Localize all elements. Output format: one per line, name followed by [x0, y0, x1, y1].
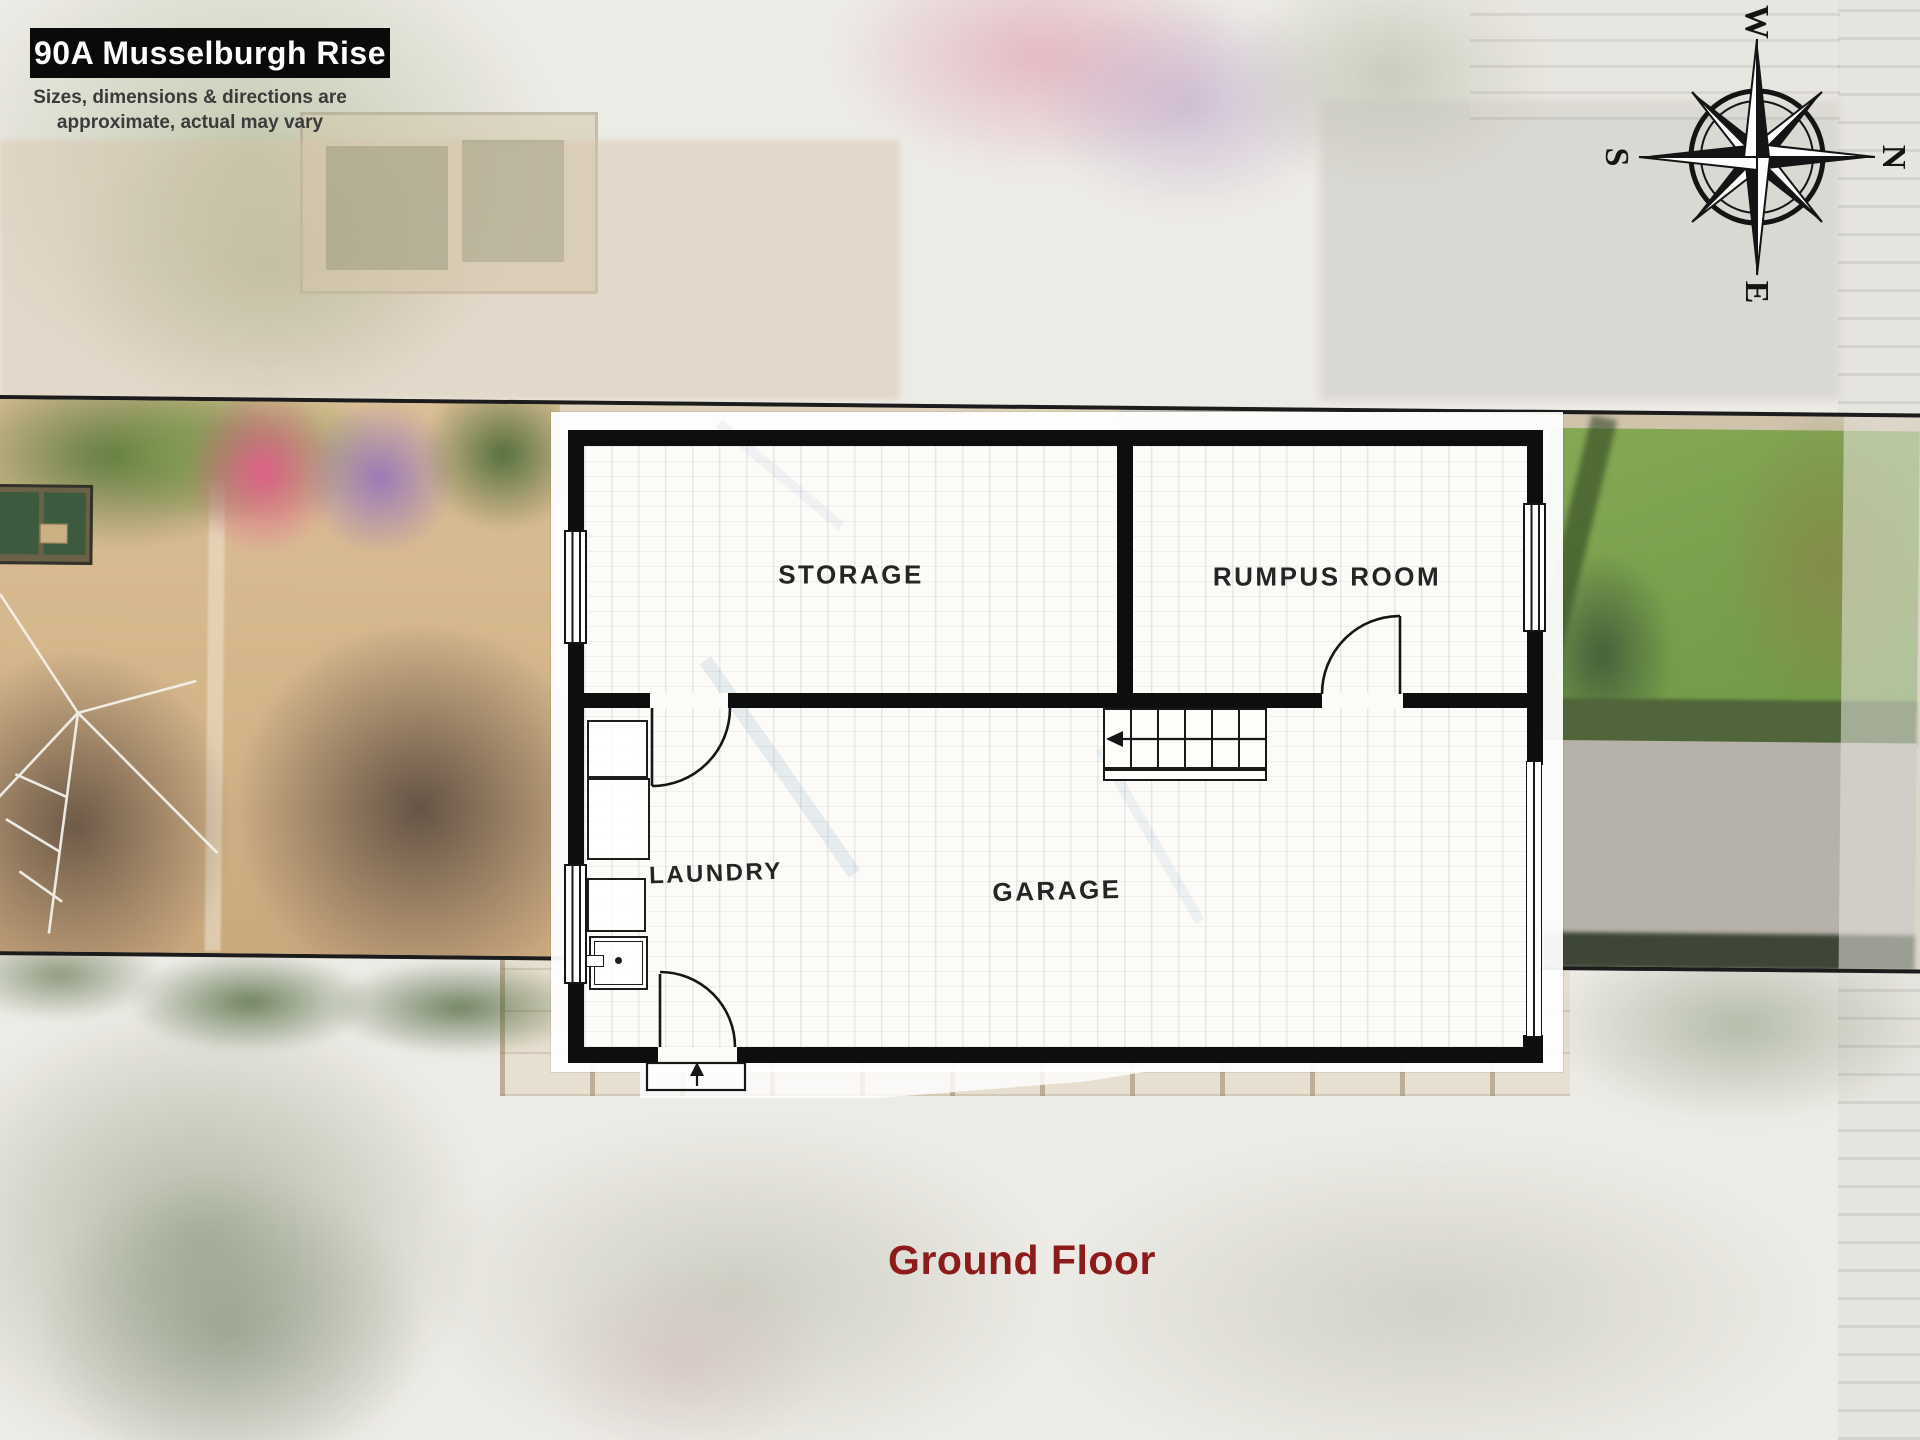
- room-label-rumpus: RUMPUS ROOM: [1213, 562, 1441, 593]
- room-label-garage: GARAGE: [992, 874, 1122, 908]
- disclaimer-line: Sizes, dimensions & directions are: [15, 86, 365, 111]
- wall-right-upper: [1527, 430, 1543, 507]
- window-laundry-left: [564, 864, 587, 984]
- address-title-box: 90A Musselburgh Rise: [30, 28, 390, 78]
- washed-pavers-top: [0, 140, 900, 400]
- window-garage-right: [1526, 761, 1542, 1037]
- washing-machine: [589, 936, 648, 990]
- laundry-tub: [587, 878, 646, 932]
- clothesline-icon: [0, 519, 253, 951]
- disclaimer-text: Sizes, dimensions & directions are appro…: [15, 86, 365, 135]
- washed-roof-strip-right: [1839, 417, 1920, 970]
- washing-machine-tray: [586, 955, 604, 967]
- paver-shadow-right: [238, 626, 601, 973]
- disclaimer-line: approximate, actual may vary: [15, 111, 365, 136]
- washed-trees-bottom-right: [1050, 1140, 1810, 1440]
- room-label-storage: STORAGE: [778, 560, 924, 591]
- wall-right-corner: [1523, 1035, 1543, 1063]
- stairs-landing: [1103, 769, 1267, 781]
- compass-south-label: S: [1598, 148, 1635, 167]
- plan-floor: [584, 446, 1527, 1047]
- rumpus-door-opening: [1322, 693, 1403, 708]
- window-storage-left: [564, 530, 587, 644]
- compass-north-label: N: [1875, 145, 1912, 170]
- compass-west-label: W: [1738, 5, 1775, 39]
- page-root: STORAGE RUMPUS ROOM LAUNDRY GARAGE 90A M…: [0, 0, 1920, 1440]
- wall-storage-rumpus-divider: [1117, 446, 1133, 693]
- laundry-door-opening: [650, 693, 728, 708]
- laundry-cupboard: [587, 778, 650, 860]
- compass-rose-icon: N E S W: [1597, 0, 1917, 317]
- floor-level-label: Ground Floor: [872, 1237, 1172, 1284]
- page-title: 90A Musselburgh Rise: [34, 35, 386, 72]
- room-label-laundry: LAUNDRY: [649, 858, 784, 891]
- washed-flowers-bottom: [540, 1270, 820, 1440]
- stairs: [1103, 708, 1267, 769]
- washing-machine-knob: [615, 957, 622, 964]
- wall-right-mid: [1527, 630, 1543, 765]
- laundry-bench: [587, 720, 648, 778]
- window-rumpus-right: [1523, 503, 1546, 632]
- entry-door-opening: [658, 1047, 737, 1063]
- compass-east-label: E: [1738, 281, 1775, 304]
- wall-top: [568, 430, 1543, 446]
